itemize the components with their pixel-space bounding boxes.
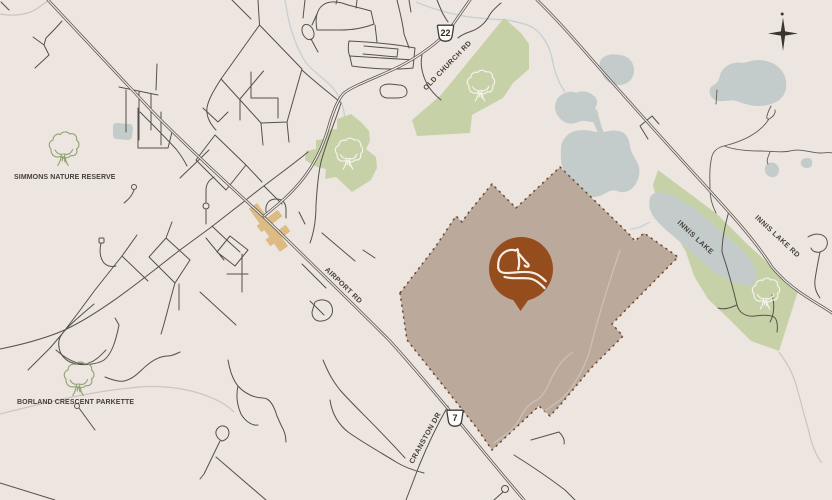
svg-text:BORLAND CRESCENT PARKETTE: BORLAND CRESCENT PARKETTE [17,399,134,406]
svg-text:22: 22 [440,28,450,38]
svg-text:SIMMONS NATURE RESERVE: SIMMONS NATURE RESERVE [14,174,116,181]
svg-text:7: 7 [452,413,457,423]
